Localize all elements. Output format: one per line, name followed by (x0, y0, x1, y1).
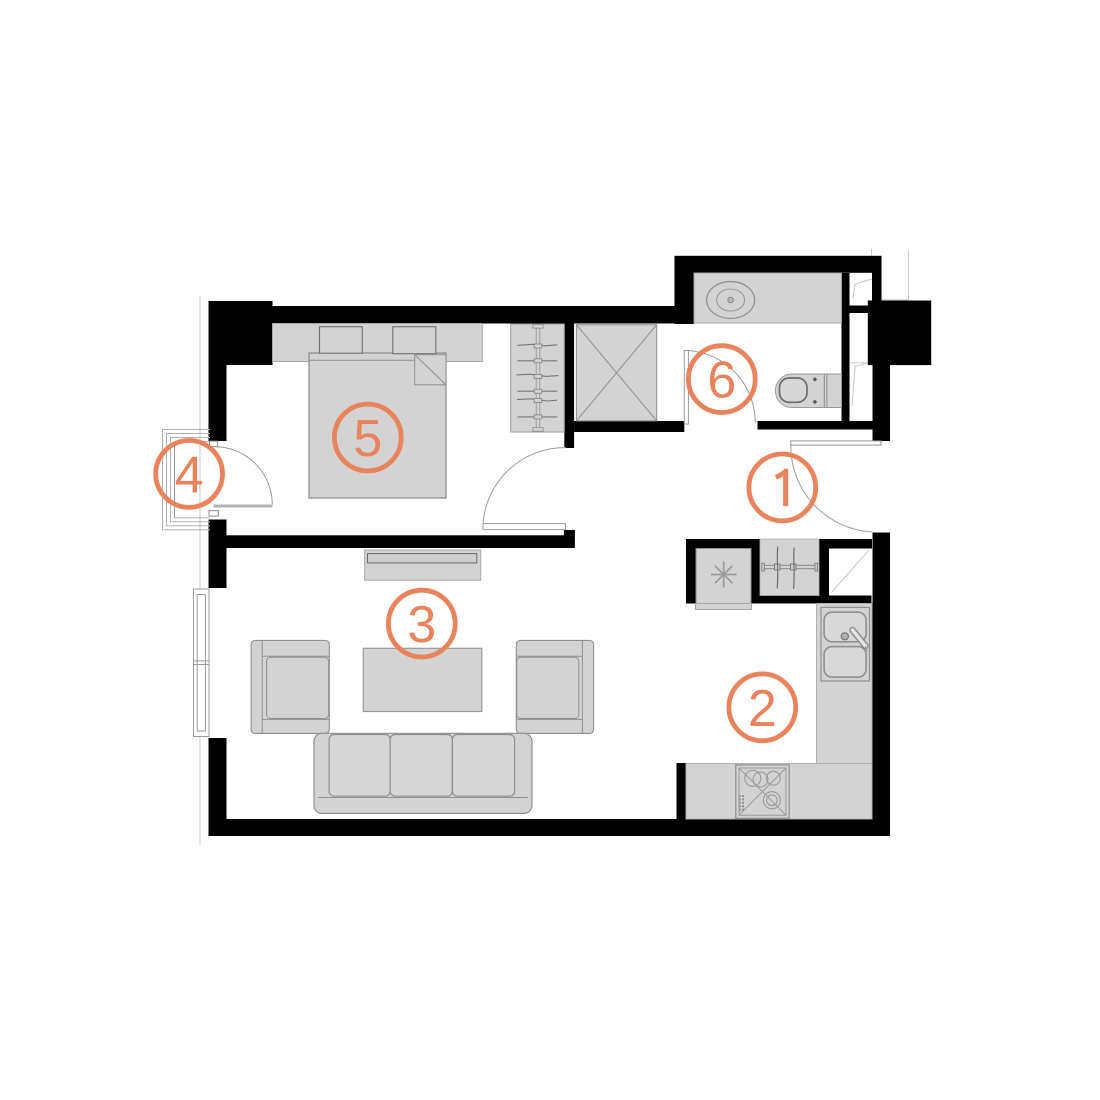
svg-text:3: 3 (407, 596, 436, 654)
svg-text:5: 5 (353, 410, 382, 468)
svg-text:2: 2 (748, 680, 777, 738)
svg-text:4: 4 (175, 447, 204, 505)
svg-text:6: 6 (707, 352, 736, 410)
